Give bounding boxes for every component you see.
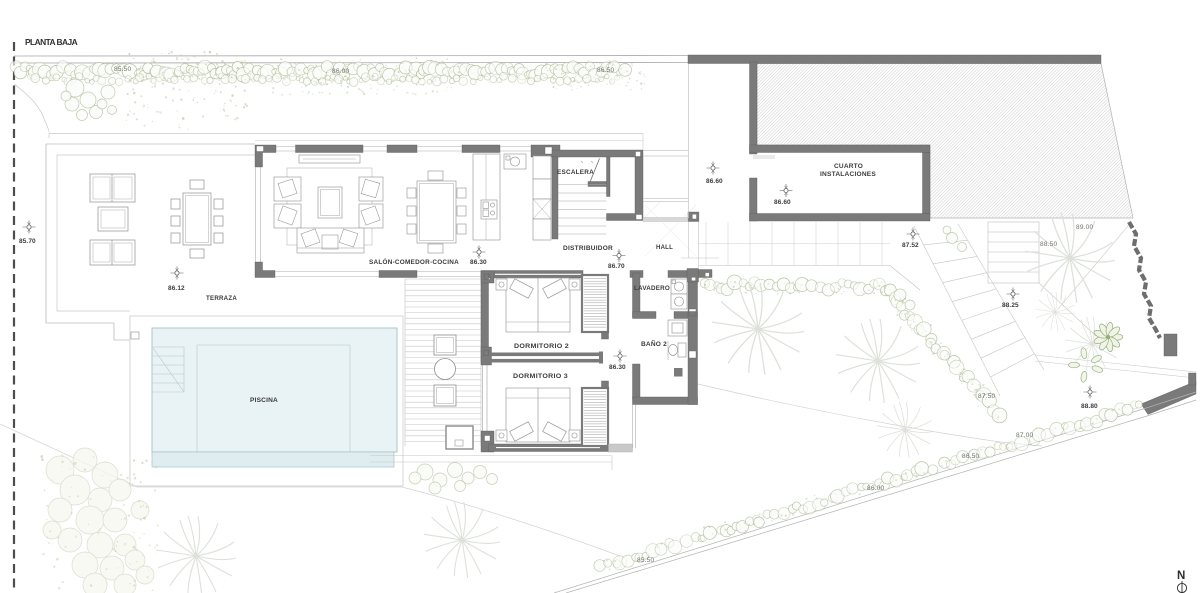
svg-text:DORMITORIO 3: DORMITORIO 3: [513, 373, 568, 380]
svg-text:86.30: 86.30: [609, 364, 626, 371]
svg-text:86.12: 86.12: [168, 285, 185, 292]
svg-text:87.00: 87.00: [1016, 432, 1033, 439]
svg-text:ESCALERA: ESCALERA: [557, 169, 594, 176]
svg-text:CUARTO: CUARTO: [834, 163, 863, 170]
svg-text:86.30: 86.30: [470, 259, 487, 266]
svg-text:86.50: 86.50: [597, 67, 614, 74]
svg-text:PISCINA: PISCINA: [250, 397, 278, 404]
svg-text:86.00: 86.00: [332, 68, 349, 75]
svg-text:87.50: 87.50: [978, 393, 995, 400]
svg-text:BAÑO 2: BAÑO 2: [641, 339, 667, 348]
svg-text:TERRAZA: TERRAZA: [206, 295, 237, 302]
svg-text:88.25: 88.25: [1002, 302, 1019, 309]
svg-text:N: N: [1177, 570, 1185, 582]
svg-text:85.50: 85.50: [114, 66, 131, 73]
svg-text:86.50: 86.50: [962, 453, 979, 460]
svg-text:HALL: HALL: [656, 244, 673, 251]
svg-text:PLANTA BAJA: PLANTA BAJA: [25, 37, 78, 47]
svg-text:86.60: 86.60: [774, 199, 791, 206]
svg-text:86.60: 86.60: [706, 178, 723, 185]
svg-text:86.70: 86.70: [608, 263, 625, 270]
svg-text:LAVADERO: LAVADERO: [634, 285, 670, 292]
svg-text:DORMITORIO 2: DORMITORIO 2: [514, 343, 569, 350]
svg-text:85.70: 85.70: [19, 238, 36, 245]
svg-text:INSTALACIONES: INSTALACIONES: [820, 171, 877, 178]
svg-text:89.00: 89.00: [1076, 224, 1093, 231]
svg-text:SALÓN-COMEDOR-COCINA: SALÓN-COMEDOR-COCINA: [369, 257, 459, 266]
svg-text:86.00: 86.00: [867, 485, 884, 492]
svg-text:88.80: 88.80: [1081, 403, 1098, 410]
svg-text:87.52: 87.52: [902, 242, 919, 249]
svg-text:DISTRIBUIDOR: DISTRIBUIDOR: [563, 245, 613, 252]
svg-text:88.50: 88.50: [1040, 241, 1057, 248]
svg-text:85.50: 85.50: [637, 557, 654, 564]
